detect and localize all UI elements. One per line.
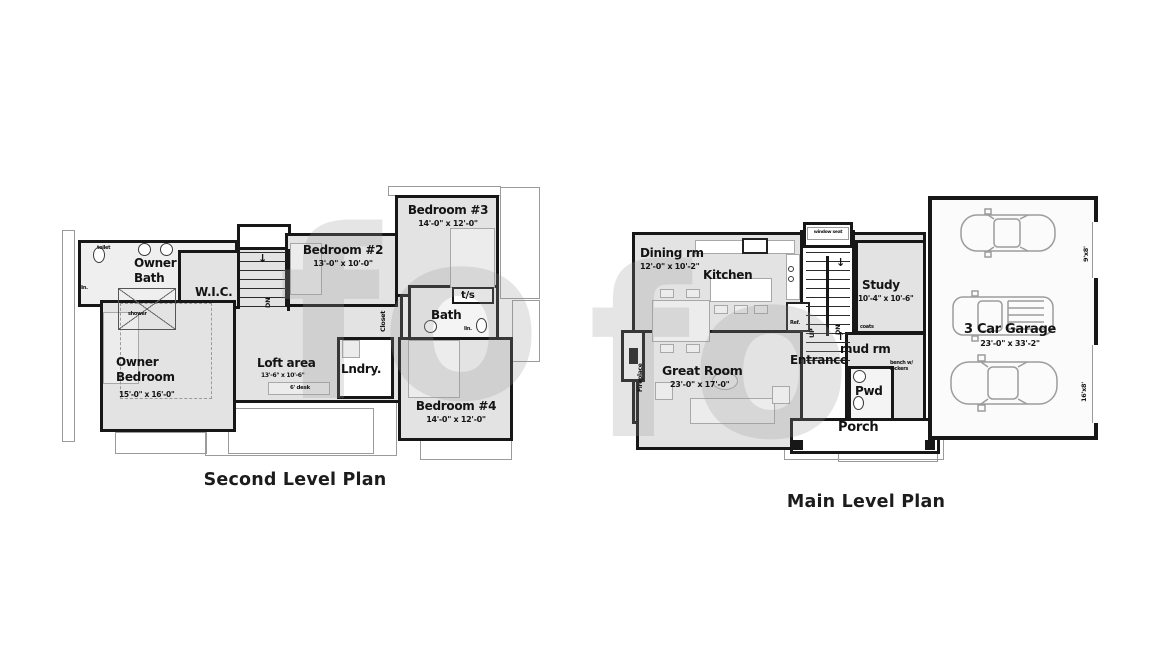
bath2-label: Bath (431, 308, 461, 323)
garage-door-large-label: 16'x8' (1080, 382, 1088, 402)
laundry-label: Lndry. (341, 362, 381, 377)
kitchen-label: Kitchen (703, 268, 752, 283)
bed-icon (408, 340, 460, 398)
tub-shower-label: t/s (461, 290, 475, 303)
garage-dims: 23'-0" x 33'-2" (945, 339, 1075, 349)
stair-arrow-down-icon: ↓ (836, 256, 845, 270)
chair-icon (660, 344, 674, 353)
owner-bedroom-dims: 15'-0" x 16'-0" (119, 390, 175, 399)
owner-bath-label: Owner Bath (134, 256, 198, 286)
porch-below-owner (115, 432, 207, 454)
owner-bedroom-label: Owner Bedroom (116, 355, 210, 385)
stair-wall (287, 249, 290, 311)
floor-plan-canvas: ↓ Owner Bath W.I.C. Owner Bedroom 15'-0"… (0, 0, 1152, 648)
cooktop-burner-icon (788, 276, 794, 282)
bedroom2-dims: 13'-0" x 10'-0" (297, 259, 389, 269)
stair-arrow-down-icon: ↓ (258, 252, 267, 266)
up-label: UP (808, 329, 816, 338)
loft-label: Loft area (257, 356, 316, 371)
chair-icon (686, 344, 700, 353)
car-icon (958, 206, 1058, 260)
garage-label: 3 Car Garage (945, 322, 1075, 338)
porch-post (925, 440, 935, 450)
bench-lockers-label: bench w/ lockers (890, 360, 922, 373)
desk-label: 6' desk (290, 385, 310, 392)
bedroom3-label: Bedroom #3 (400, 203, 496, 218)
ref-label: Ref. (790, 320, 800, 326)
second-level-title: Second Level Plan (65, 470, 525, 490)
coats-label: coats (860, 324, 874, 330)
eave-line-right-top (500, 187, 540, 299)
great-room-label: Great Room (662, 363, 743, 379)
powder-label: Pwd (855, 384, 883, 399)
garage-door-small (1092, 222, 1100, 278)
shower-label: shower (128, 311, 147, 317)
great-room-dims: 23'-0" x 17'-0" (670, 380, 730, 390)
stair-rail (826, 256, 829, 336)
loft-dims: 13'-6" x 10'-6" (261, 372, 305, 380)
bedroom2-label: Bedroom #2 (297, 243, 389, 258)
dining-table-icon (652, 300, 710, 342)
garage-door-large (1092, 345, 1100, 423)
stool-icon (714, 305, 728, 314)
dining-label: Dining rm (640, 246, 704, 261)
shower-icon (118, 288, 176, 330)
mud-room-label: mud rm (840, 342, 890, 357)
chair-icon (686, 289, 700, 298)
porch-below-bed4 (420, 440, 512, 460)
chair-icon (660, 289, 674, 298)
sink-icon (853, 370, 866, 383)
fireplace-firebox (629, 348, 638, 364)
fireplace-label: Fireplace (637, 363, 645, 392)
porch-label: Porch (838, 420, 878, 436)
cooktop-burner-icon (788, 266, 794, 272)
sofa-icon (690, 398, 775, 424)
porch-post (793, 440, 803, 450)
linen2-label: lin. (464, 326, 472, 332)
sink-icon (160, 243, 173, 256)
bedroom3-dims: 14'-0" x 12'-0" (400, 219, 496, 229)
wic-label: W.I.C. (195, 285, 232, 300)
eave-line-right-mid (512, 300, 540, 362)
dining-dims: 12'-0" x 10'-2" (640, 262, 700, 272)
main-level-title: Main Level Plan (700, 492, 1032, 512)
bedroom4-label: Bedroom #4 (404, 399, 508, 414)
study-dims: 10'-4" x 10'-6" (858, 294, 914, 303)
stool-icon (754, 305, 768, 314)
study-label: Study (862, 278, 900, 293)
stair-arrow-up-icon: ↑ (836, 330, 845, 344)
chair-icon (772, 386, 790, 404)
toilet-label: toilet (97, 245, 110, 251)
bedroom4-dims: 14'-0" x 12'-0" (404, 415, 508, 425)
window-seat-label: window seat (807, 230, 849, 236)
car-icon (948, 352, 1060, 414)
bed-icon (450, 228, 495, 288)
stool-icon (734, 305, 748, 314)
toilet-icon (476, 318, 487, 333)
kitchen-sink-icon (742, 238, 768, 254)
down-label: DN (264, 298, 272, 308)
garage-door-small-label: 9'x8' (1082, 246, 1090, 262)
eave-line-left (62, 230, 75, 442)
closet-label: Closet (379, 311, 387, 332)
sink-icon (138, 243, 151, 256)
linen-label: lin. (80, 285, 88, 291)
deck-inner (228, 408, 374, 454)
washer-icon (342, 340, 360, 358)
